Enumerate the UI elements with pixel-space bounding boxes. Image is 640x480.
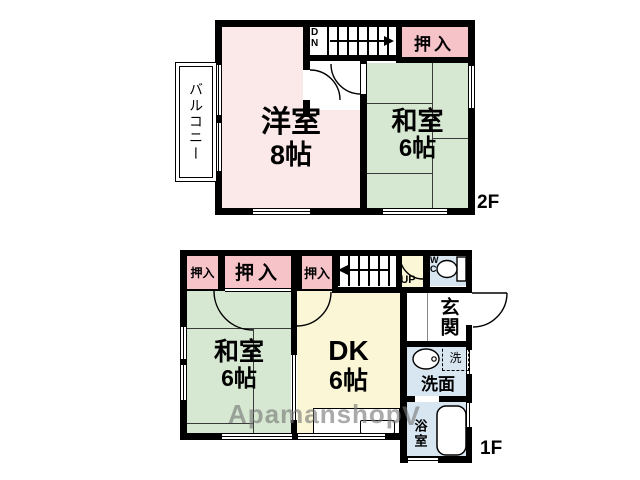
stair-treads-2f (327, 27, 396, 55)
laundry-space: 洗 (442, 344, 469, 371)
room-name: DK (328, 335, 368, 366)
door-opening (466, 293, 472, 325)
closet-label-2f: 押入 (396, 25, 472, 59)
entrance-door-swing (473, 293, 507, 327)
watermark-logo: V (402, 401, 420, 432)
window (408, 457, 438, 463)
closet-front-line (187, 289, 218, 291)
room-name: 洋室 (261, 106, 321, 140)
window (222, 433, 292, 440)
window (383, 208, 447, 215)
room-size: 8帖 (270, 140, 312, 170)
window (466, 403, 472, 427)
dk-room-label: DK 6帖 (297, 325, 400, 405)
entrance-step-line (427, 293, 428, 341)
entrance-label: 玄関 (430, 294, 466, 340)
wall (303, 55, 402, 61)
wall (218, 256, 225, 291)
toilet-label: WC (430, 256, 440, 275)
door-opening (361, 64, 366, 94)
closet-small-label: 押入 (187, 258, 218, 286)
room-name: 和室 (391, 107, 443, 136)
balcony: バルコニー (175, 62, 217, 182)
stairs-up-label: UP (396, 272, 420, 287)
washroom-label: 洗面 (409, 370, 467, 394)
window-mullion (180, 359, 187, 365)
laundry-label: 洗 (449, 349, 461, 366)
room-size: 6帖 (221, 366, 257, 392)
balcony-label: バルコニー (186, 82, 206, 162)
wall (400, 287, 407, 463)
stairs-down-label: DN (311, 28, 324, 49)
tatami-room-label-1f: 和室 6帖 (187, 325, 291, 405)
floor-plan-canvas: バルコニー (0, 0, 640, 480)
floor-label-2f: 2F (477, 192, 499, 214)
room-size: 6帖 (399, 136, 436, 163)
closet-front-line (302, 289, 332, 291)
wall (423, 250, 430, 293)
closet-third-label: 押入 (302, 258, 332, 286)
stair-treads-1f (338, 256, 396, 286)
tatami-room-label-2f: 和室 6帖 (367, 90, 468, 180)
floor-label-1f: 1F (480, 438, 502, 460)
window (298, 433, 385, 440)
western-room-label: 洋室 8帖 (222, 88, 360, 188)
window (468, 66, 475, 108)
room-name: 和室 (214, 338, 264, 366)
window (253, 208, 310, 215)
balcony-railing: バルコニー (179, 66, 213, 178)
room-size: 6帖 (329, 367, 368, 395)
sliding-door (225, 288, 291, 292)
watermark-text: Apamanshop (228, 399, 403, 430)
entrance-label-text: 玄関 (435, 297, 462, 337)
closet-wide-label: 押入 (225, 255, 291, 287)
